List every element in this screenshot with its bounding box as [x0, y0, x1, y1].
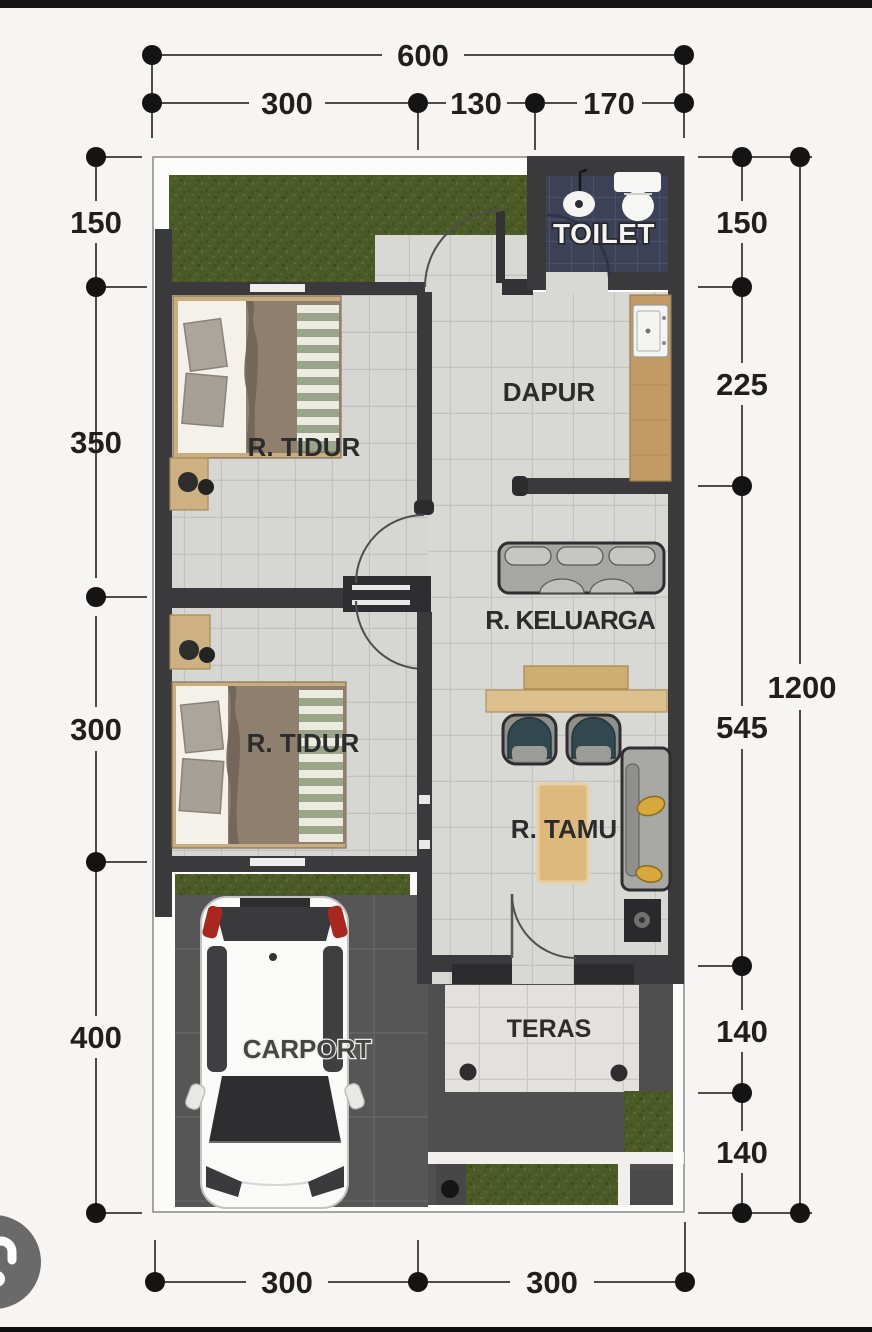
- svg-text:150: 150: [716, 205, 768, 240]
- svg-text:140: 140: [716, 1135, 768, 1170]
- svg-text:TOILET: TOILET: [553, 218, 655, 249]
- svg-text:DAPUR: DAPUR: [503, 377, 596, 407]
- svg-text:130: 130: [450, 86, 502, 121]
- svg-text:600: 600: [397, 38, 449, 73]
- svg-text:300: 300: [261, 86, 313, 121]
- svg-text:140: 140: [716, 1014, 768, 1049]
- svg-text:R. TIDUR: R. TIDUR: [247, 728, 360, 758]
- svg-text:400: 400: [70, 1020, 122, 1055]
- svg-text:300: 300: [526, 1265, 578, 1300]
- svg-text:300: 300: [261, 1265, 313, 1300]
- svg-text:CARPORT: CARPORT: [243, 1034, 372, 1064]
- svg-text:170: 170: [583, 86, 635, 121]
- svg-text:R. KELUARGA: R. KELUARGA: [485, 605, 656, 635]
- svg-text:300: 300: [70, 712, 122, 747]
- svg-text:R. TAMU: R. TAMU: [511, 814, 617, 844]
- svg-text:545: 545: [716, 710, 768, 745]
- svg-text:150: 150: [70, 205, 122, 240]
- svg-text:R. TIDUR: R. TIDUR: [248, 432, 361, 462]
- svg-text:225: 225: [716, 367, 768, 402]
- svg-text:TERAS: TERAS: [507, 1015, 592, 1043]
- svg-text:1200: 1200: [768, 670, 837, 705]
- svg-text:350: 350: [70, 425, 122, 460]
